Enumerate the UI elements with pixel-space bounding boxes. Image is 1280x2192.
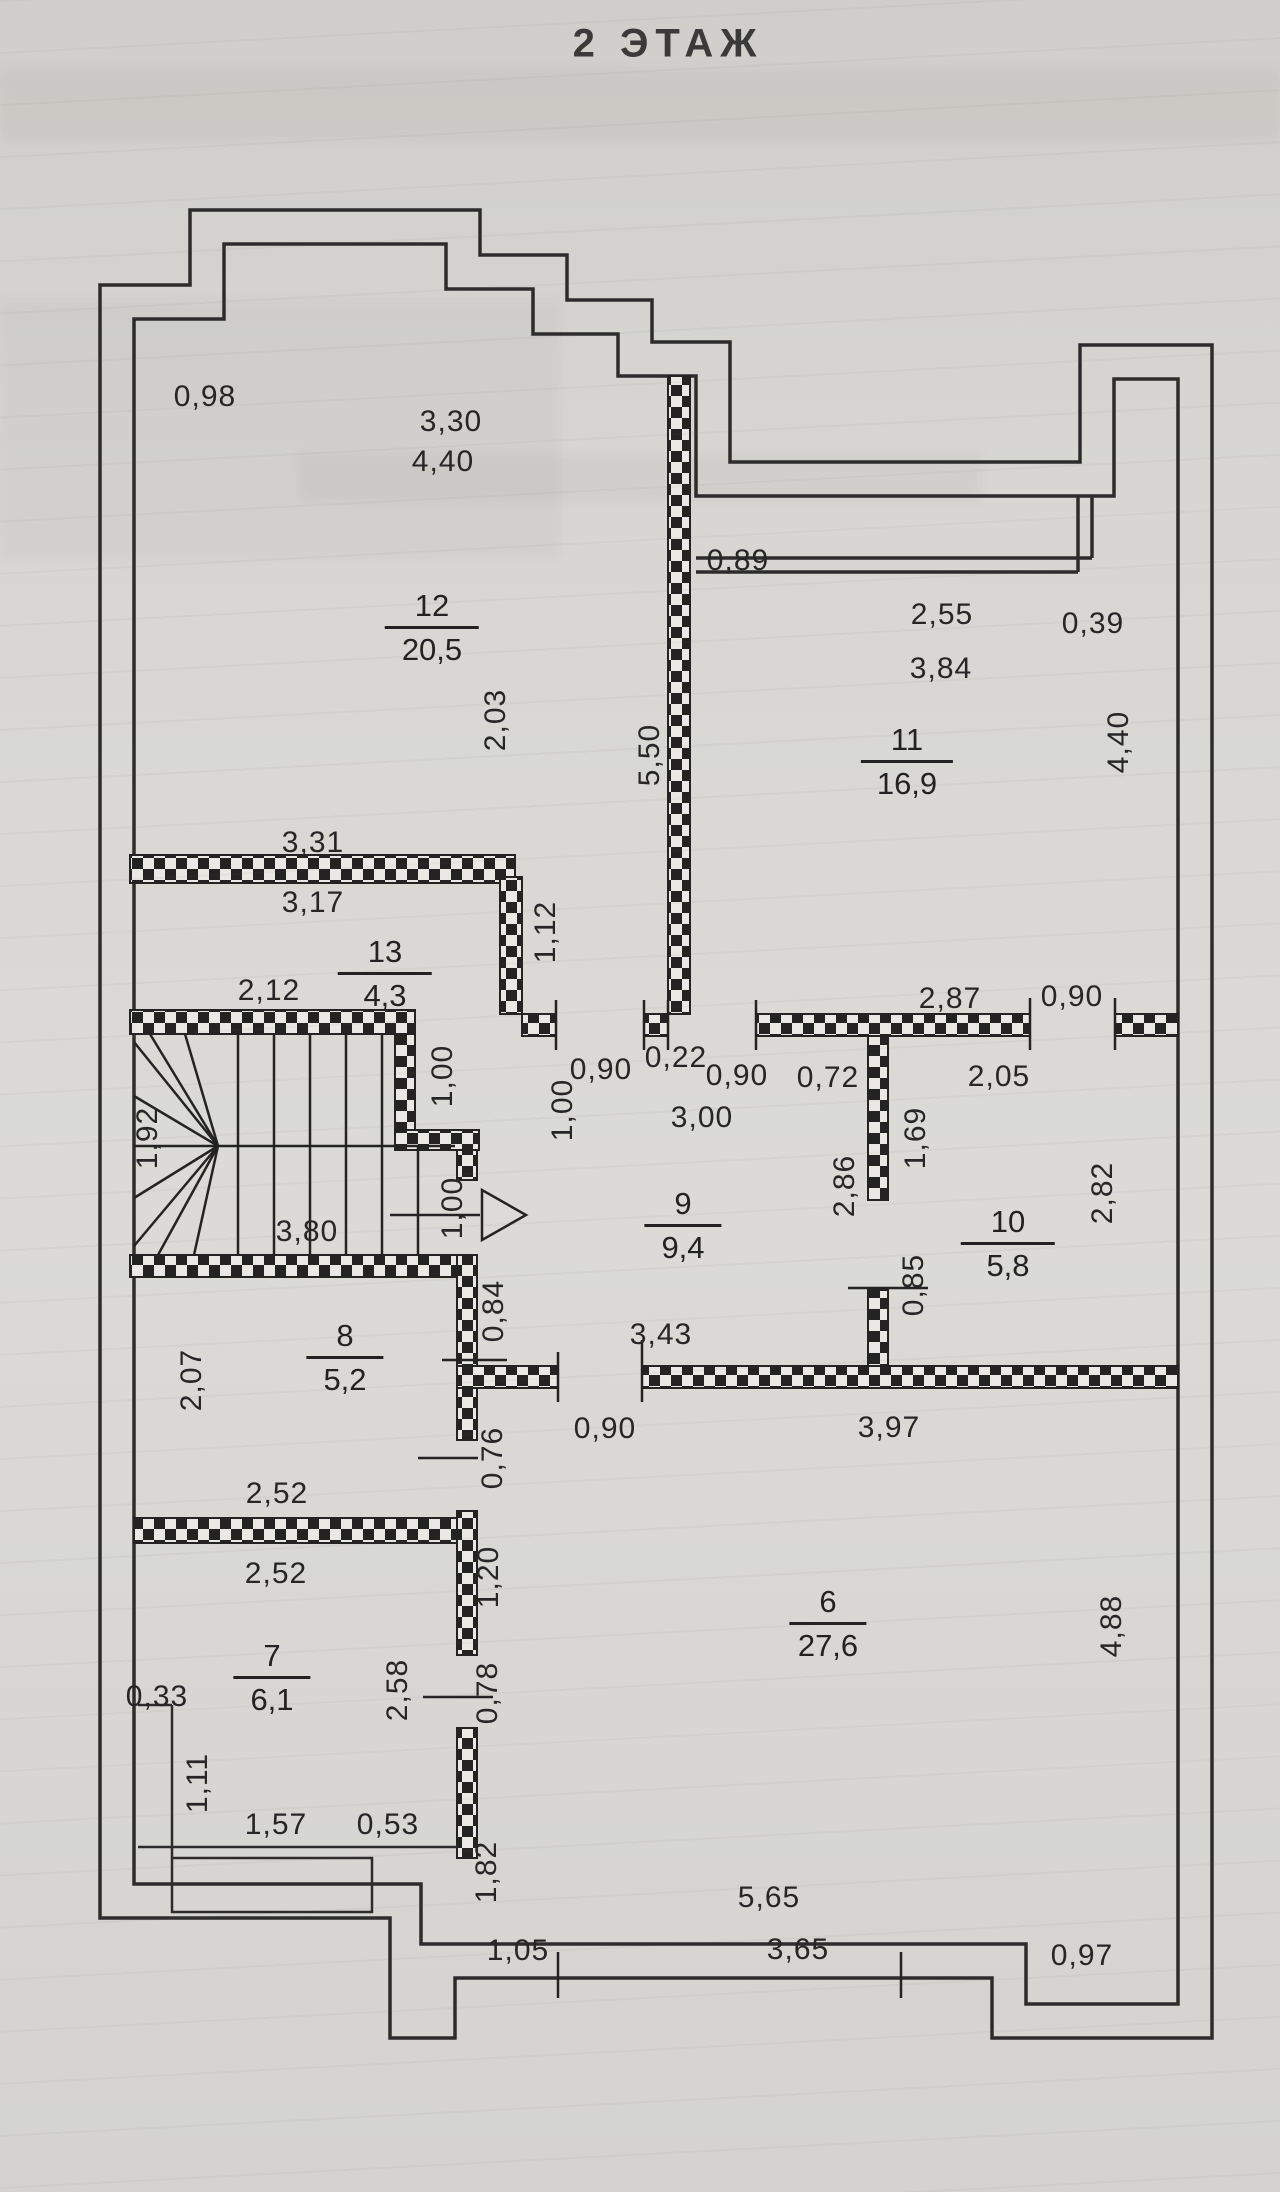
floor-plan-drawing — [0, 0, 1280, 2192]
dimension-label: 0,76 — [478, 1427, 508, 1489]
room-number: 8 — [306, 1320, 383, 1359]
dimension-label: 2,12 — [238, 976, 300, 1006]
dimension-label: 2,03 — [481, 689, 511, 751]
dimension-label: 4,40 — [1104, 711, 1134, 773]
dimension-label: 4,88 — [1097, 1595, 1127, 1657]
room-label-9: 99,4 — [644, 1188, 721, 1263]
room-number: 6 — [789, 1586, 866, 1625]
dimension-label: 2,05 — [968, 1062, 1030, 1092]
dimension-label: 1,00 — [548, 1079, 578, 1141]
dimension-label: 5,65 — [738, 1883, 800, 1913]
dimension-label: 0,72 — [797, 1063, 859, 1093]
scanned-floor-plan-page: 2 ЭТАЖ 1220,51116,9134,399,4105,885,276,… — [0, 0, 1280, 2192]
room-number: 7 — [233, 1640, 310, 1679]
dimension-label: 0,98 — [174, 382, 236, 412]
dimension-label: 0,39 — [1062, 609, 1124, 639]
dimension-label: 5,50 — [635, 724, 665, 786]
dimension-label: 1,92 — [133, 1107, 163, 1169]
dimension-label: 0,90 — [574, 1414, 636, 1444]
dimension-label: 0,90 — [1041, 982, 1103, 1012]
dimension-label: 0,22 — [645, 1043, 707, 1073]
room-area: 5,8 — [986, 1250, 1029, 1281]
dimension-label: 2,55 — [911, 600, 973, 630]
interior-walls — [130, 376, 1178, 1858]
room-area: 16,9 — [877, 768, 937, 799]
room-area: 6,1 — [250, 1684, 293, 1715]
room-number: 10 — [961, 1206, 1055, 1245]
dimension-label: 3,31 — [282, 828, 344, 858]
room-label-10: 105,8 — [961, 1206, 1055, 1281]
dimension-label: 0,97 — [1051, 1941, 1113, 1971]
room-number: 11 — [861, 724, 953, 763]
room-area: 5,2 — [323, 1364, 366, 1395]
dimension-label: 3,30 — [420, 407, 482, 437]
dimension-label: 2,58 — [383, 1659, 413, 1721]
exterior-walls — [100, 210, 1212, 2038]
dimension-label: 1,00 — [438, 1177, 468, 1239]
dimension-label: 0,90 — [706, 1061, 768, 1091]
room-area: 27,6 — [798, 1630, 858, 1661]
room-area: 9,4 — [661, 1232, 704, 1263]
room-area: 4,3 — [363, 980, 406, 1011]
dimension-label: 3,43 — [630, 1320, 692, 1350]
dimension-label: 1,69 — [901, 1107, 931, 1169]
dimension-label: 1,57 — [245, 1810, 307, 1840]
room-number: 12 — [385, 590, 479, 629]
dimension-label: 1,12 — [531, 901, 561, 963]
dimension-label: 2,86 — [830, 1155, 860, 1217]
dimension-label: 3,97 — [858, 1413, 920, 1443]
dimension-label: 2,52 — [246, 1479, 308, 1509]
dimension-label: 0,53 — [357, 1810, 419, 1840]
dimension-label: 0,33 — [126, 1682, 188, 1712]
room-label-12: 1220,5 — [385, 590, 479, 665]
dimension-label: 2,87 — [919, 984, 981, 1014]
dimension-label: 0,78 — [473, 1662, 503, 1724]
dimension-label: 3,80 — [276, 1217, 338, 1247]
dimension-label: 0,84 — [479, 1280, 509, 1342]
dimension-label: 0,89 — [707, 546, 769, 576]
room-number: 9 — [644, 1188, 721, 1227]
dimension-label: 3,65 — [767, 1935, 829, 1965]
dimension-label: 1,05 — [487, 1936, 549, 1966]
dimension-label: 4,40 — [412, 447, 474, 477]
page-title: 2 ЭТАЖ — [573, 22, 764, 67]
inner-wall-line — [134, 244, 1178, 2004]
dimension-label: 1,00 — [428, 1045, 458, 1107]
dimension-label: 2,07 — [177, 1349, 207, 1411]
dimension-label: 3,84 — [910, 654, 972, 684]
dimension-label: 2,52 — [245, 1559, 307, 1589]
room-label-6: 627,6 — [789, 1586, 866, 1661]
dimension-label: 1,11 — [183, 1753, 213, 1813]
dimension-label: 0,90 — [570, 1055, 632, 1085]
dimension-label: 2,82 — [1088, 1162, 1118, 1224]
dimension-label: 1,82 — [472, 1841, 502, 1903]
room-label-13: 134,3 — [338, 936, 432, 1011]
room-label-8: 85,2 — [306, 1320, 383, 1395]
dimension-label: 3,17 — [282, 888, 344, 918]
dimension-ticks — [418, 998, 1115, 1998]
outer-wall-line — [100, 210, 1212, 2038]
dimension-label: 0,85 — [899, 1254, 929, 1316]
room-area: 20,5 — [402, 634, 462, 665]
dimension-label: 1,20 — [474, 1546, 504, 1608]
stair-direction-arrow — [482, 1190, 526, 1240]
dimension-label: 3,00 — [671, 1103, 733, 1133]
room-label-11: 1116,9 — [861, 724, 953, 799]
room-label-7: 76,1 — [233, 1640, 310, 1715]
room-number: 13 — [338, 936, 432, 975]
